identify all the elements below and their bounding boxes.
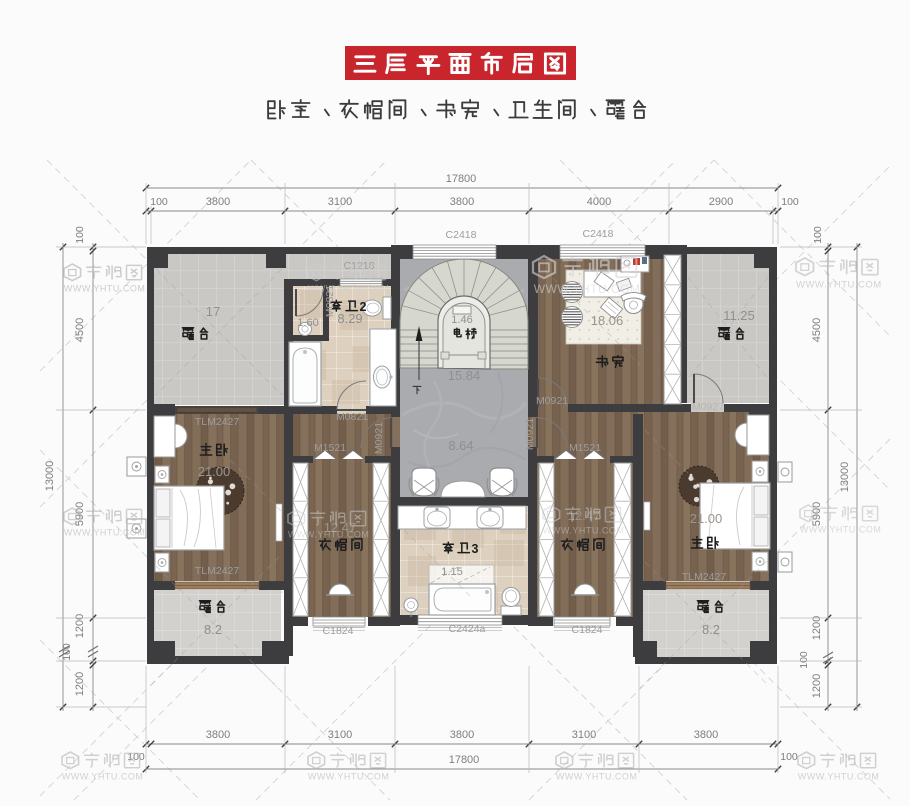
svg-text:8.29: 8.29 [337,311,362,326]
svg-text:M0821: M0821 [336,411,368,423]
svg-text:WWW.YHTU.COM: WWW.YHTU.COM [796,279,882,290]
svg-text:3100: 3100 [328,196,352,208]
svg-text:WWW.YHTU.COM: WWW.YHTU.COM [64,528,146,538]
svg-text:8.64: 8.64 [448,438,473,453]
svg-text:100: 100 [780,751,798,763]
svg-text:WWW.YHTU.COM: WWW.YHTU.COM [800,525,882,535]
svg-text:M1521: M1521 [569,442,601,454]
svg-text:21.00: 21.00 [690,511,723,526]
svg-text:M0921: M0921 [524,418,536,450]
svg-text:1200: 1200 [811,674,823,698]
svg-text:13000: 13000 [839,462,851,493]
svg-text:C1824: C1824 [572,624,603,636]
svg-text:3800: 3800 [450,196,474,208]
svg-text:17800: 17800 [449,754,480,766]
svg-text:3800: 3800 [206,729,230,741]
svg-text:1200: 1200 [811,616,823,640]
svg-text:4500: 4500 [74,318,86,342]
svg-text:4500: 4500 [811,318,823,342]
svg-text:WWW.YHTU.COM: WWW.YHTU.COM [534,282,641,296]
svg-text:1200: 1200 [74,672,86,696]
svg-text:17800: 17800 [446,173,477,185]
svg-text:WWW.YHTU.COM: WWW.YHTU.COM [798,772,880,782]
svg-text:C2424a: C2424a [449,623,486,635]
svg-text:18.06: 18.06 [591,313,624,328]
svg-text:15.84: 15.84 [448,368,481,383]
svg-text:3800: 3800 [450,729,474,741]
svg-text:M0921: M0921 [536,395,568,407]
svg-text:4000: 4000 [587,196,611,208]
svg-text:WWW.YHTU.COM: WWW.YHTU.COM [288,530,370,540]
svg-text:100: 100 [150,196,168,208]
svg-text:WWW.YHTU.COM: WWW.YHTU.COM [308,772,390,782]
svg-text:3100: 3100 [572,729,596,741]
svg-text:WWW.YHTU.COM: WWW.YHTU.COM [62,772,144,782]
svg-text:C2418: C2418 [446,229,477,241]
svg-text:100: 100 [781,196,799,208]
svg-text:3: 3 [472,542,479,556]
svg-text:M0927: M0927 [692,401,724,413]
svg-text:100: 100 [74,226,86,244]
svg-text:M0921: M0921 [373,422,385,454]
svg-text:WWW.YHTU.COM: WWW.YHTU.COM [308,284,390,294]
svg-text:13000: 13000 [44,461,56,492]
svg-text:WWW.YHTU.COM: WWW.YHTU.COM [556,772,638,782]
svg-text:C2418: C2418 [583,228,614,240]
svg-text:17: 17 [206,304,220,319]
svg-text:8.2: 8.2 [204,622,222,637]
svg-text:C1824: C1824 [323,625,354,637]
svg-text:TLM2427: TLM2427 [195,565,240,577]
svg-text:3800: 3800 [694,729,718,741]
svg-text:1200: 1200 [74,614,86,638]
svg-text:21.00: 21.00 [198,464,231,479]
svg-text:3800: 3800 [206,196,230,208]
svg-text:2900: 2900 [709,196,733,208]
svg-text:1.46: 1.46 [451,314,472,326]
svg-text:100: 100 [798,651,810,669]
svg-text:WWW.YHTU.COM: WWW.YHTU.COM [543,526,625,536]
svg-text:11.25: 11.25 [723,308,755,323]
svg-text:TLM2427: TLM2427 [682,571,727,583]
svg-text:M1521: M1521 [314,442,346,454]
svg-text:8.2: 8.2 [702,622,720,637]
svg-text:3100: 3100 [328,729,352,741]
svg-text:WWW.YHTU.COM: WWW.YHTU.COM [64,284,146,294]
svg-text:1.60: 1.60 [297,317,318,329]
svg-text:TLM2427: TLM2427 [195,416,240,428]
svg-text:1.15: 1.15 [441,566,462,578]
svg-text:100: 100 [812,226,824,244]
